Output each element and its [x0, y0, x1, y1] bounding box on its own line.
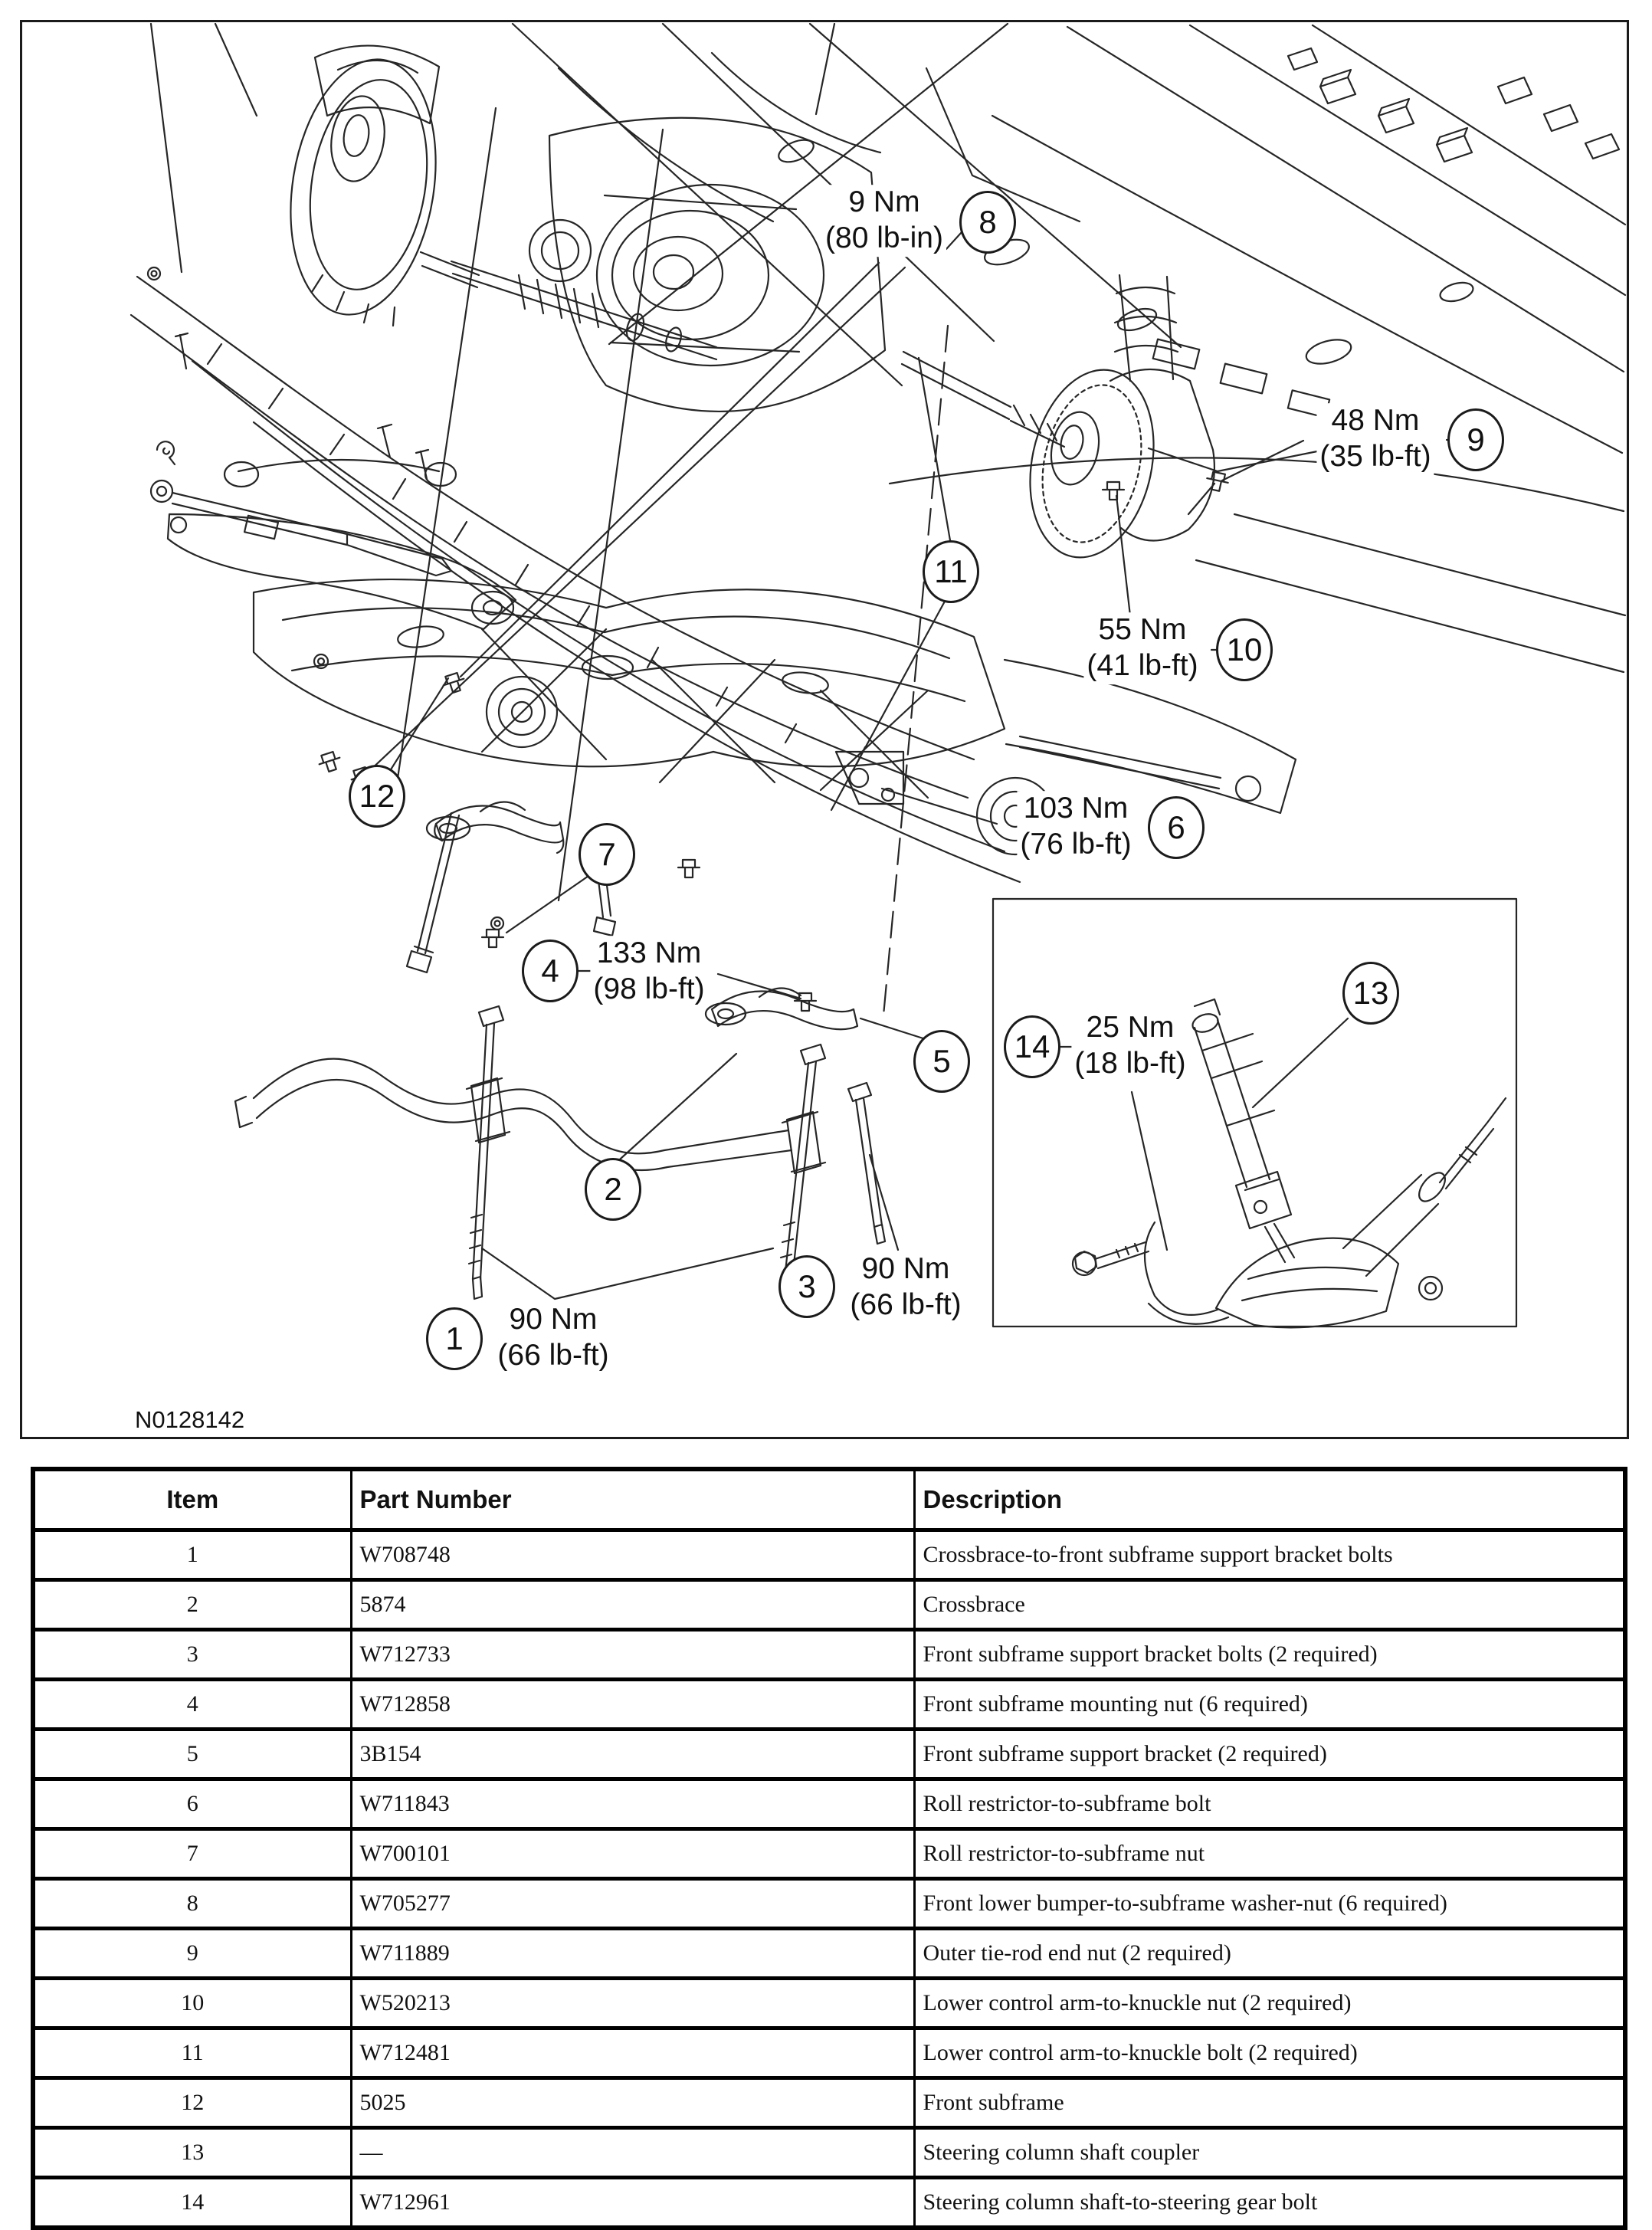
callout-5: 5 [913, 1030, 970, 1093]
cell-item: 3 [33, 1630, 351, 1680]
torque-alt: (66 lb-ft) [497, 1338, 608, 1374]
torque-label-8: 9 Nm (80 lb-in) [822, 185, 946, 257]
header-description: Description [914, 1469, 1625, 1530]
table-row: 14W712961Steering column shaft-to-steeri… [33, 2178, 1625, 2228]
cell-item: 14 [33, 2178, 351, 2228]
table-row: 13—Steering column shaft coupler [33, 2128, 1625, 2178]
cell-description: Crossbrace-to-front subframe support bra… [914, 1530, 1625, 1580]
torque-label-9: 48 Nm (35 lb-ft) [1316, 403, 1434, 475]
cell-description: Lower control arm-to-knuckle bolt (2 req… [914, 2028, 1625, 2078]
cell-description: Steering column shaft-to-steering gear b… [914, 2178, 1625, 2228]
cell-description: Front subframe support bracket (2 requir… [914, 1730, 1625, 1779]
bolt-glyphs [407, 813, 885, 1299]
callout-8: 8 [959, 191, 1016, 254]
cell-description: Front subframe [914, 2078, 1625, 2128]
cell-part-number: W712481 [351, 2028, 914, 2078]
cell-item: 2 [33, 1580, 351, 1630]
callout-13: 13 [1342, 962, 1399, 1025]
callout-7: 7 [579, 823, 635, 886]
callout-10: 10 [1216, 618, 1273, 681]
torque-alt: (41 lb-ft) [1087, 648, 1198, 684]
cell-part-number: W712733 [351, 1630, 914, 1680]
cell-part-number: 5874 [351, 1580, 914, 1630]
callout-11: 11 [923, 540, 979, 603]
table-row: 6W711843Roll restrictor-to-subframe bolt [33, 1779, 1625, 1829]
cell-description: Front subframe mounting nut (6 required) [914, 1680, 1625, 1730]
cell-part-number: W700101 [351, 1829, 914, 1879]
torque-alt: (80 lb-in) [825, 221, 943, 257]
cell-item: 13 [33, 2128, 351, 2178]
cell-part-number: W705277 [351, 1879, 914, 1929]
cell-description: Lower control arm-to-knuckle nut (2 requ… [914, 1979, 1625, 2028]
table-row: 10W520213Lower control arm-to-knuckle nu… [33, 1979, 1625, 2028]
torque-value: 55 Nm [1087, 612, 1198, 648]
table-header-row: Item Part Number Description [33, 1469, 1625, 1530]
cell-part-number: W712961 [351, 2178, 914, 2228]
parts-table: Item Part Number Description 1W708748Cro… [31, 1467, 1627, 2230]
callout-12: 12 [349, 765, 405, 828]
brake-rotor [274, 46, 479, 326]
cell-item: 8 [33, 1879, 351, 1929]
torque-label-4: 133 Nm (98 lb-ft) [590, 936, 707, 1008]
cell-part-number: W520213 [351, 1979, 914, 2028]
cell-item: 11 [33, 2028, 351, 2078]
torque-alt: (18 lb-ft) [1074, 1046, 1185, 1082]
torque-alt: (66 lb-ft) [850, 1287, 961, 1323]
table-row: 7W700101Roll restrictor-to-subframe nut [33, 1829, 1625, 1879]
torque-alt: (98 lb-ft) [593, 972, 704, 1008]
bumper-beam [131, 277, 1020, 882]
torque-label-1: 90 Nm (66 lb-ft) [494, 1302, 611, 1374]
cell-description: Front lower bumper-to-subframe washer-nu… [914, 1879, 1625, 1929]
cell-item: 7 [33, 1829, 351, 1879]
header-part-number: Part Number [351, 1469, 914, 1530]
callout-4: 4 [522, 940, 579, 1002]
table-row: 25874Crossbrace [33, 1580, 1625, 1630]
steering-gear-inset [993, 899, 1516, 1327]
header-item: Item [33, 1469, 351, 1530]
table-row: 8W705277Front lower bumper-to-subframe w… [33, 1879, 1625, 1929]
cell-item: 9 [33, 1929, 351, 1979]
cell-item: 12 [33, 2078, 351, 2128]
crossbrace [235, 1059, 825, 1173]
figure-id: N0128142 [135, 1406, 244, 1434]
cell-part-number: W712858 [351, 1680, 914, 1730]
cell-description: Outer tie-rod end nut (2 required) [914, 1929, 1625, 1979]
cell-description: Steering column shaft coupler [914, 2128, 1625, 2178]
leader-lines [369, 232, 1452, 1299]
callout-14: 14 [1004, 1015, 1060, 1078]
cell-description: Roll restrictor-to-subframe nut [914, 1829, 1625, 1879]
torque-value: 9 Nm [825, 185, 943, 221]
torque-label-14: 25 Nm (18 lb-ft) [1071, 1010, 1188, 1082]
cell-item: 1 [33, 1530, 351, 1580]
cell-item: 6 [33, 1779, 351, 1829]
torque-alt: (76 lb-ft) [1020, 827, 1131, 863]
cell-part-number: W711889 [351, 1929, 914, 1979]
callout-1: 1 [426, 1307, 483, 1370]
torque-value: 48 Nm [1319, 403, 1431, 439]
torque-value: 90 Nm [497, 1302, 608, 1338]
callout-6: 6 [1148, 796, 1205, 859]
cell-description: Crossbrace [914, 1580, 1625, 1630]
table-row: 53B154Front subframe support bracket (2 … [33, 1730, 1625, 1779]
callout-9: 9 [1447, 408, 1504, 471]
torque-label-6: 103 Nm (76 lb-ft) [1017, 791, 1134, 863]
cell-part-number: 3B154 [351, 1730, 914, 1779]
torque-value: 103 Nm [1020, 791, 1131, 827]
cell-item: 5 [33, 1730, 351, 1779]
torque-value: 90 Nm [850, 1251, 961, 1287]
table-row: 3W712733Front subframe support bracket b… [33, 1630, 1625, 1680]
table-row: 1W708748Crossbrace-to-front subframe sup… [33, 1530, 1625, 1580]
callout-2: 2 [585, 1158, 641, 1221]
cell-part-number: W711843 [351, 1779, 914, 1829]
table-row: 11W712481Lower control arm-to-knuckle bo… [33, 2028, 1625, 2078]
torque-alt: (35 lb-ft) [1319, 439, 1431, 475]
table-row: 4W712858Front subframe mounting nut (6 r… [33, 1680, 1625, 1730]
torque-label-10: 55 Nm (41 lb-ft) [1083, 612, 1201, 684]
cell-part-number: W708748 [351, 1530, 914, 1580]
cell-description: Roll restrictor-to-subframe bolt [914, 1779, 1625, 1829]
cell-part-number: 5025 [351, 2078, 914, 2128]
torque-value: 25 Nm [1074, 1010, 1185, 1046]
cell-item: 4 [33, 1680, 351, 1730]
torque-label-3: 90 Nm (66 lb-ft) [847, 1251, 964, 1323]
cell-description: Front subframe support bracket bolts (2 … [914, 1630, 1625, 1680]
table-row: 9W711889Outer tie-rod end nut (2 require… [33, 1929, 1625, 1979]
torque-value: 133 Nm [593, 936, 704, 972]
exploded-view-figure: 1 2 3 4 5 6 7 8 9 10 11 12 13 14 90 Nm (… [20, 20, 1629, 1439]
cell-item: 10 [33, 1979, 351, 2028]
cell-part-number: — [351, 2128, 914, 2178]
table-row: 125025Front subframe [33, 2078, 1625, 2128]
callout-3: 3 [778, 1255, 835, 1318]
